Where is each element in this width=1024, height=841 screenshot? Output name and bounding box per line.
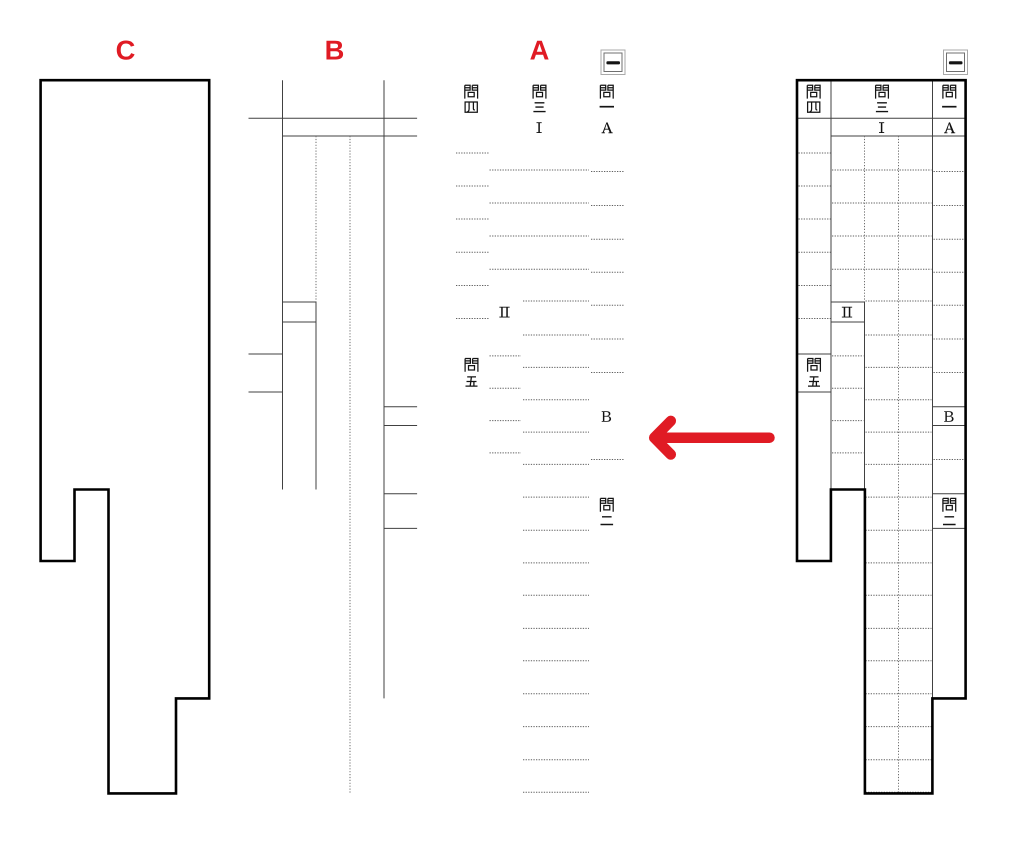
svg-text:A: A [530, 35, 550, 66]
svg-text:B: B [325, 35, 345, 66]
svg-text:C: C [116, 35, 136, 66]
